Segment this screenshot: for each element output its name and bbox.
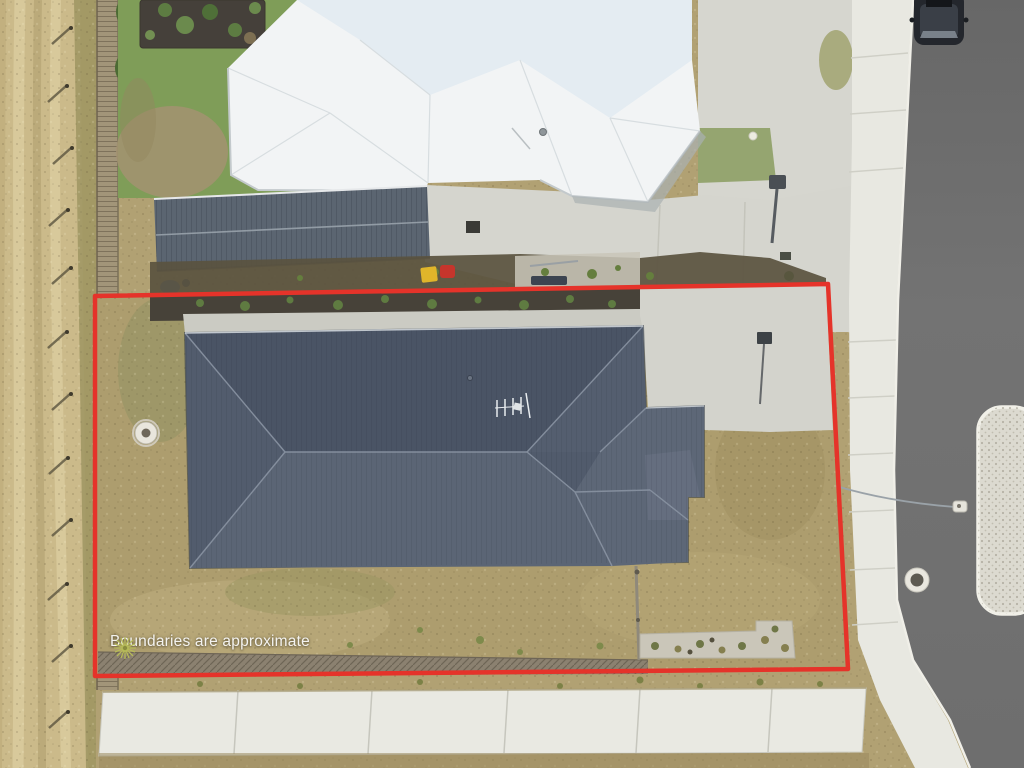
grass-tuft-verge xyxy=(819,30,853,90)
car-mirror-left xyxy=(910,18,915,23)
yellow-bin xyxy=(420,266,438,283)
car-windshield xyxy=(920,31,958,38)
dirt-patch-2 xyxy=(120,78,156,162)
starburst-icon xyxy=(110,633,140,663)
traffic-island-texture xyxy=(978,407,1024,614)
neighbor-house-roof xyxy=(228,0,706,212)
manhole-center xyxy=(911,574,924,587)
parked-car xyxy=(910,0,969,45)
letterbox xyxy=(757,332,772,344)
lawn-strip xyxy=(698,128,776,183)
aerial-photo-canvas xyxy=(0,0,1024,768)
antenna-head xyxy=(513,402,521,410)
street xyxy=(836,0,1024,768)
grass-below-path xyxy=(99,753,869,768)
left-paddock xyxy=(0,0,96,768)
paddock-texture xyxy=(0,0,96,768)
septic-lid xyxy=(133,420,159,446)
septic-center xyxy=(142,429,151,438)
car-sunroof xyxy=(926,0,952,7)
subject-house-roof xyxy=(185,326,704,568)
aerial-property-photo: Boundaries are approximate xyxy=(0,0,1024,768)
light-head xyxy=(769,175,786,189)
red-toy-car xyxy=(440,265,455,278)
footpath-bottom xyxy=(99,688,866,756)
roof-corrugation xyxy=(185,326,704,568)
dark-equipment xyxy=(531,276,567,285)
car-mirror-right xyxy=(964,18,969,23)
small-pit xyxy=(780,252,791,260)
side-fence-post-2 xyxy=(636,618,640,622)
boundary-disclaimer: Boundaries are approximate xyxy=(110,633,310,651)
drain-pit xyxy=(466,221,480,233)
roof-vent xyxy=(468,376,473,381)
roof-flue xyxy=(540,129,547,136)
side-fence-post xyxy=(635,570,640,575)
ground-vent xyxy=(749,132,757,140)
road-asphalt xyxy=(894,0,1024,768)
cable-end-dot xyxy=(957,504,961,508)
